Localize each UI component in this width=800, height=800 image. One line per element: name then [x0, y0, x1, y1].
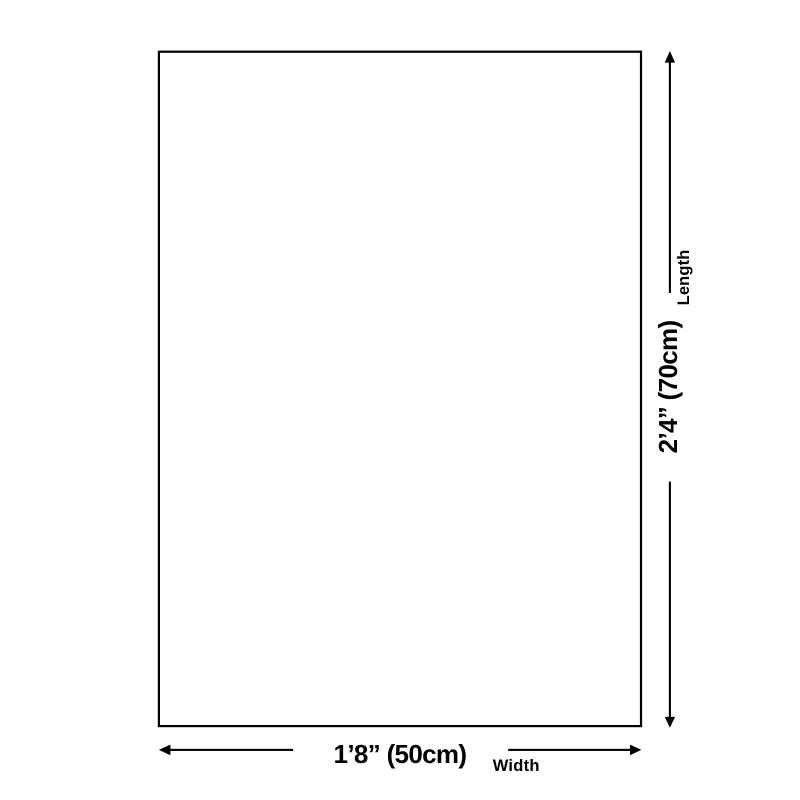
- svg-text:1’8” (50cm): 1’8” (50cm): [334, 739, 468, 769]
- svg-text:Length: Length: [675, 250, 693, 306]
- svg-text:Width: Width: [493, 757, 540, 775]
- svg-text:2’4” (70cm): 2’4” (70cm): [653, 320, 683, 454]
